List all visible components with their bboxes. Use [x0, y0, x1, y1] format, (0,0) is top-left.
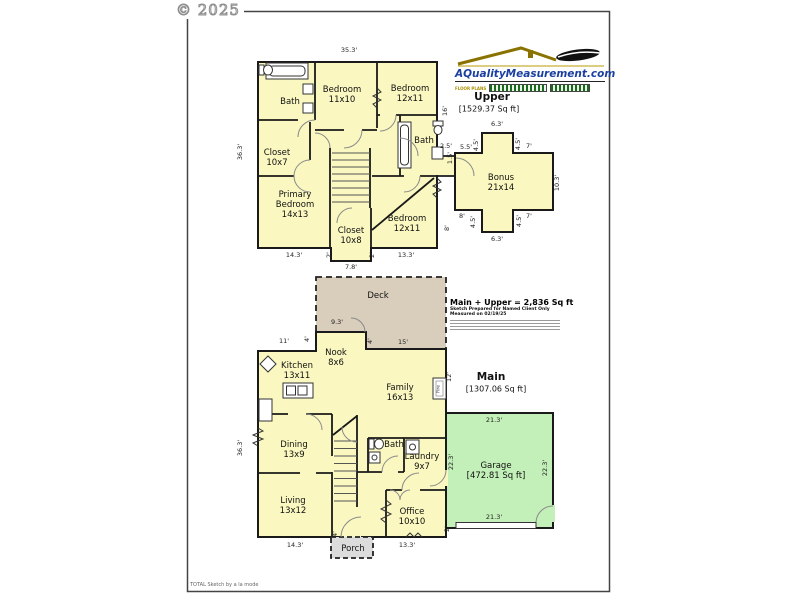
dimension-label: 2'	[369, 252, 377, 258]
footer-text: TOTAL Sketch by a la mode	[190, 582, 258, 588]
fine-print	[450, 320, 560, 332]
dimension-label: 4.5'	[470, 216, 478, 228]
room-label: Main	[477, 371, 506, 383]
room-label: PrimaryBedroom14x13	[276, 190, 314, 220]
room-label: Laundry9x7	[405, 452, 440, 472]
dimension-label: 10.3'	[554, 175, 562, 191]
room-label: Bedroom11x10	[323, 85, 361, 105]
room-label: Closet10x8	[338, 226, 365, 246]
dimension-label: 4.5'	[516, 215, 524, 227]
dimension-label: 4'	[304, 336, 312, 342]
room-label: [1529.37 Sq ft]	[459, 104, 519, 113]
dimension-label: 22.3'	[542, 460, 550, 476]
room-label: Family16x13	[386, 383, 413, 403]
dimension-label: 16'	[442, 106, 450, 116]
floor-plan-page: © 2025 AQualityMeasurement.com FLOOR PLA…	[0, 0, 800, 600]
room-label: Bath	[384, 440, 404, 450]
logo-tagline: FLOOR PLANS	[455, 86, 486, 91]
dimension-label: 1.5'	[447, 152, 455, 164]
room-label: Bath	[280, 97, 300, 107]
dimension-label: 2'	[326, 252, 334, 258]
dimension-label: 4.5'	[515, 138, 523, 150]
dimension-label: 14.3'	[286, 252, 302, 260]
dimension-label: 36.3'	[237, 144, 245, 160]
room-label: Garage[472.81 Sq ft]	[467, 461, 526, 481]
copyright-text: © 2025	[172, 1, 244, 19]
room-label: [1307.06 Sq ft]	[466, 384, 526, 393]
dimension-label: 4'	[332, 531, 340, 537]
summary-block: Main + Upper = 2,836 Sq ft Sketch Prepar…	[450, 298, 566, 332]
dimension-label: 15'	[398, 339, 408, 347]
dimension-label: 12'	[446, 372, 454, 382]
room-label: Bedroom12x11	[391, 84, 429, 104]
dimension-label: 5.5'	[460, 144, 472, 152]
logo-bars-icon	[550, 84, 590, 92]
dimension-label: 2.5'	[440, 143, 452, 151]
dimension-label: 11'	[279, 338, 289, 346]
dimension-label: 7'	[526, 213, 532, 221]
dimension-label: 9.3'	[331, 319, 343, 327]
dimension-label: 8'	[444, 225, 452, 231]
summary-total: Main + Upper = 2,836 Sq ft	[450, 298, 566, 307]
logo-site-text: AQualityMeasurement.com	[455, 68, 605, 82]
logo: AQualityMeasurement.com FLOOR PLANS	[455, 46, 605, 92]
room-label: Dining13x9	[280, 440, 307, 460]
dimension-label: 36.3'	[237, 440, 245, 456]
room-label: Fire	[436, 385, 441, 393]
room-label: Nook8x6	[325, 348, 347, 368]
room-label: Office10x10	[399, 507, 426, 527]
dimension-label: 6.3'	[491, 121, 503, 129]
room-label: Bath	[414, 136, 434, 146]
room-label: Closet10x7	[264, 148, 291, 168]
dimension-label: 7'	[526, 143, 532, 151]
dimension-label: 13.3'	[399, 542, 415, 550]
dimension-label: 21.3'	[486, 514, 502, 522]
dimension-label: 13.3'	[398, 252, 414, 260]
dimension-label: 4.5'	[473, 139, 481, 151]
dimension-label: 14.3'	[287, 542, 303, 550]
dimension-label: 21.3'	[486, 417, 502, 425]
room-label: Deck	[367, 291, 388, 301]
dimension-label: 6.3'	[491, 236, 503, 244]
summary-measured: Measured on 02/19/25	[450, 312, 566, 317]
garage-door	[456, 523, 536, 529]
dimension-label: 2'	[444, 526, 452, 532]
room-label: Upper	[474, 91, 510, 103]
room-label: Bedroom12x11	[388, 214, 426, 234]
dimension-label: 35.3'	[341, 47, 357, 55]
room-label: Porch	[341, 544, 364, 554]
dimension-label: 4'	[367, 338, 375, 344]
dimension-label: 7.8'	[345, 264, 357, 272]
room-label: Kitchen13x11	[281, 361, 313, 381]
room-label: Living13x12	[280, 496, 307, 516]
dimension-label: 8'	[459, 213, 465, 221]
dimension-label: 22.3'	[448, 454, 456, 470]
room-label: Bonus21x14	[488, 173, 515, 193]
